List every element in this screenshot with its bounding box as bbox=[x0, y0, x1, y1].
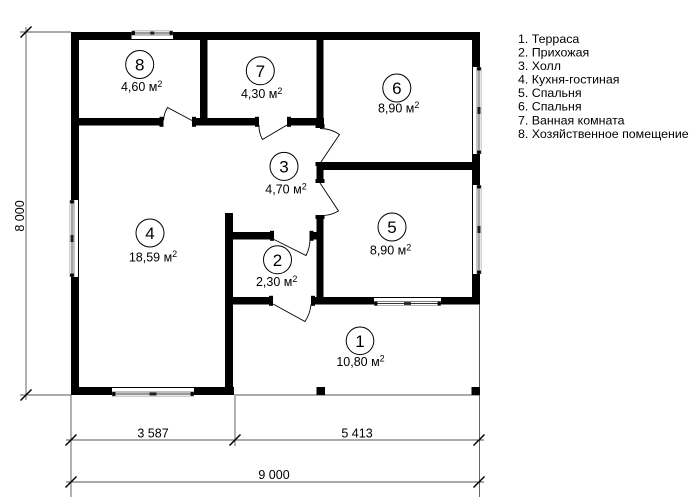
svg-text:8. Хозяйственное помещение: 8. Хозяйственное помещение bbox=[518, 127, 689, 141]
svg-text:6. Спальня: 6. Спальня bbox=[518, 100, 582, 114]
svg-text:4,60 м2: 4,60 м2 bbox=[121, 79, 162, 94]
svg-text:1: 1 bbox=[355, 332, 364, 351]
svg-text:18,59 м2: 18,59 м2 bbox=[129, 249, 177, 264]
svg-text:1. Терраса: 1. Терраса bbox=[518, 32, 579, 46]
svg-text:2. Прихожая: 2. Прихожая bbox=[518, 46, 589, 60]
svg-text:5. Спальня: 5. Спальня bbox=[518, 86, 582, 100]
svg-text:9 000: 9 000 bbox=[258, 468, 289, 482]
svg-text:8,90 м2: 8,90 м2 bbox=[378, 100, 419, 115]
svg-text:3 587: 3 587 bbox=[137, 427, 168, 441]
svg-text:8: 8 bbox=[135, 56, 144, 75]
svg-text:4,30 м2: 4,30 м2 bbox=[241, 86, 282, 101]
svg-text:3. Холл: 3. Холл bbox=[518, 59, 561, 73]
svg-text:4,70 м2: 4,70 м2 bbox=[265, 181, 306, 196]
svg-text:8,90 м2: 8,90 м2 bbox=[370, 243, 411, 258]
svg-text:10,80 м2: 10,80 м2 bbox=[336, 354, 384, 369]
svg-text:7. Ванная комната: 7. Ванная комната bbox=[518, 113, 625, 127]
svg-text:7: 7 bbox=[256, 62, 265, 81]
svg-text:3: 3 bbox=[279, 157, 288, 176]
svg-text:2,30 м2: 2,30 м2 bbox=[256, 274, 297, 289]
svg-text:4: 4 bbox=[145, 224, 154, 243]
svg-text:6: 6 bbox=[392, 79, 401, 98]
svg-text:5 413: 5 413 bbox=[341, 427, 372, 441]
svg-text:5: 5 bbox=[387, 218, 396, 237]
svg-text:2: 2 bbox=[273, 251, 282, 270]
svg-text:8 000: 8 000 bbox=[13, 200, 27, 231]
svg-text:4. Кухня-гостиная: 4. Кухня-гостиная bbox=[518, 73, 619, 87]
